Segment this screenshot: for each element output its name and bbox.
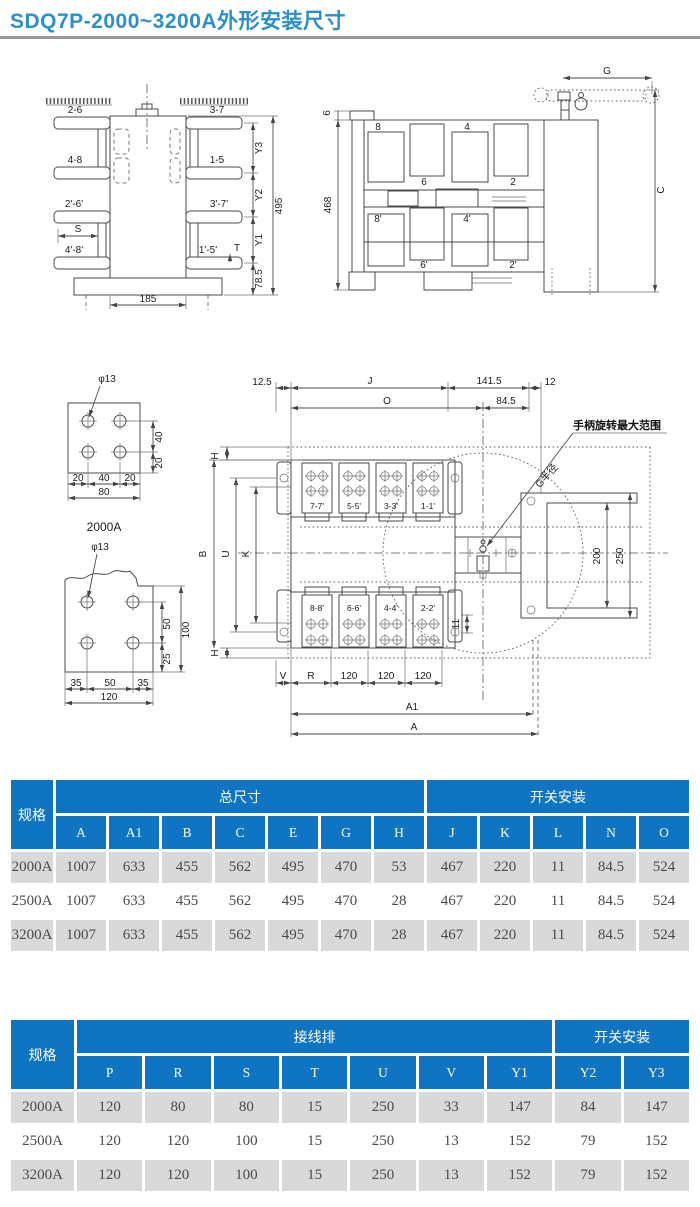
column-header-cell: K xyxy=(479,815,532,851)
spec-cell: 3200A xyxy=(10,1159,76,1193)
dim-label: φ13 xyxy=(98,374,116,385)
value-cell: 15 xyxy=(280,1125,348,1159)
dim-label: U xyxy=(221,550,232,557)
value-cell: 152 xyxy=(622,1159,690,1193)
table-row: 2500A120120100152501315279152 xyxy=(10,1125,691,1159)
value-cell: 495 xyxy=(267,919,320,953)
dim-label: 35 xyxy=(70,678,82,689)
dim-label: 40 xyxy=(98,473,110,484)
front-view-geometry xyxy=(334,78,659,296)
value-cell: 250 xyxy=(349,1159,417,1193)
value-cell: 455 xyxy=(161,885,214,919)
column-header-cell: E xyxy=(267,815,320,851)
terminal-label: 3-3' xyxy=(384,501,398,511)
spec-cell: 3200A xyxy=(10,919,55,953)
value-cell: 467 xyxy=(426,851,479,885)
pole-label: 4' xyxy=(463,214,471,225)
column-header-cell: P xyxy=(76,1055,144,1091)
dim-label: 20 xyxy=(124,473,136,484)
column-header-cell: S xyxy=(212,1055,280,1091)
value-cell: 84 xyxy=(554,1091,622,1125)
plate-size-label: 2000A xyxy=(87,520,122,534)
value-cell: 470 xyxy=(320,919,373,953)
column-header-cell: T xyxy=(280,1055,348,1091)
value-cell: 1007 xyxy=(55,851,108,885)
terminal-label: 7-7' xyxy=(310,501,324,511)
value-cell: 562 xyxy=(214,851,267,885)
value-cell: 28 xyxy=(373,885,426,919)
pole-label: 2'-6' xyxy=(65,199,83,210)
column-header-cell: V xyxy=(417,1055,485,1091)
dim-label: 35 xyxy=(137,678,149,689)
column-header-cell: U xyxy=(349,1055,417,1091)
column-header-cell: G xyxy=(320,815,373,851)
value-cell: 147 xyxy=(622,1091,690,1125)
value-cell: 28 xyxy=(373,919,426,953)
column-header-cell: N xyxy=(585,815,638,851)
value-cell: 53 xyxy=(373,851,426,885)
value-cell: 470 xyxy=(320,885,373,919)
terminal-label: 4-4' xyxy=(384,603,398,613)
value-cell: 455 xyxy=(161,851,214,885)
dim-label: V xyxy=(280,671,287,682)
dim-label: 495 xyxy=(274,197,285,214)
pole-label: 4 xyxy=(464,122,470,133)
value-cell: 250 xyxy=(349,1125,417,1159)
pole-label: 8 xyxy=(375,122,381,133)
value-cell: 13 xyxy=(417,1159,485,1193)
terminal-block: 3-3' xyxy=(376,463,406,521)
terminal-block: 4-4' xyxy=(376,587,406,647)
installation-drawing: φ13 40 20 20 40 20 80 2000A xyxy=(0,350,700,765)
dim-label: 120 xyxy=(341,671,358,682)
dim-label: G半径 xyxy=(532,461,560,490)
pole-label: 2-6 xyxy=(68,105,83,116)
dim-label: 100 xyxy=(181,621,192,638)
handle-range-note: 手柄旋转最大范围 xyxy=(573,418,661,432)
terminal-label: 8-8' xyxy=(310,603,324,613)
datasheet-page: SDQ7P-2000~3200A外形安装尺寸 xyxy=(0,0,700,1207)
value-cell: 562 xyxy=(214,885,267,919)
dim-label: Y1 xyxy=(254,233,265,246)
value-cell: 84.5 xyxy=(585,851,638,885)
value-cell: 220 xyxy=(479,851,532,885)
dim-label: K xyxy=(241,550,252,557)
dim-label: 40 xyxy=(154,431,165,443)
value-cell: 470 xyxy=(320,851,373,885)
value-cell: 33 xyxy=(417,1091,485,1125)
column-header-cell: R xyxy=(144,1055,212,1091)
dim-label: 120 xyxy=(415,671,432,682)
terminal-block: 1-1' xyxy=(413,463,443,521)
dim-label: 80 xyxy=(98,487,110,498)
terminal-label: 1-1' xyxy=(421,501,435,511)
column-header-cell: O xyxy=(638,815,691,851)
dim-label: 6 xyxy=(322,110,333,116)
table-row: 2000A1007633455562495470534672201184.552… xyxy=(10,851,691,885)
value-cell: 524 xyxy=(638,851,691,885)
dim-label: 468 xyxy=(323,196,334,213)
dim-label: 120 xyxy=(101,692,118,703)
pole-label: 4-8 xyxy=(68,155,83,166)
terminal-block: 8-8' xyxy=(302,587,332,647)
value-cell: 80 xyxy=(212,1091,280,1125)
dim-label: H xyxy=(210,452,221,459)
dim-label: 141.5 xyxy=(476,376,501,387)
dim-label: 20 xyxy=(154,457,165,469)
value-cell: 13 xyxy=(417,1125,485,1159)
pole-label: 6 xyxy=(421,177,427,188)
value-cell: 15 xyxy=(280,1159,348,1193)
value-cell: 84.5 xyxy=(585,919,638,953)
terminal-block: 2-2' xyxy=(413,587,443,647)
overall-dimensions-table: 规格总尺寸开关安装AA1BCEGHJKLNO2000A1007633455562… xyxy=(8,777,692,954)
value-cell: 120 xyxy=(76,1125,144,1159)
group-header-cell: 接线排 xyxy=(76,1019,554,1055)
dim-label: 78.5 xyxy=(254,269,265,289)
spec-header-cell: 规格 xyxy=(10,779,55,851)
pole-label: 1-5 xyxy=(210,155,225,166)
value-cell: 120 xyxy=(76,1159,144,1193)
spec-cell: 2000A xyxy=(10,1091,76,1125)
value-cell: 100 xyxy=(212,1159,280,1193)
value-cell: 152 xyxy=(622,1125,690,1159)
value-cell: 524 xyxy=(638,919,691,953)
terminal-block: 5-5' xyxy=(339,463,369,521)
value-cell: 79 xyxy=(554,1159,622,1193)
group-header-cell: 开关安装 xyxy=(554,1019,691,1055)
group-header-cell: 开关安装 xyxy=(426,779,691,815)
value-cell: 84.5 xyxy=(585,885,638,919)
value-cell: 120 xyxy=(144,1125,212,1159)
value-cell: 220 xyxy=(479,885,532,919)
dim-label: T xyxy=(234,243,240,254)
pole-label: 2 xyxy=(510,177,516,188)
dim-label: Y2 xyxy=(254,188,265,201)
dim-label: Y3 xyxy=(254,141,265,154)
value-cell: 220 xyxy=(479,919,532,953)
column-header-cell: Y1 xyxy=(485,1055,553,1091)
dim-label: 120 xyxy=(378,671,395,682)
column-header-cell: L xyxy=(532,815,585,851)
pole-label: 2' xyxy=(509,260,517,271)
value-cell: 100 xyxy=(212,1125,280,1159)
outline-drawings: 2-6 3-7 4-8 1-5 2'-6' 3'-7' 4'-8' 1'-5' … xyxy=(0,55,700,350)
value-cell: 11 xyxy=(532,885,585,919)
dim-label: 50 xyxy=(104,678,116,689)
column-header-cell: H xyxy=(373,815,426,851)
column-header-cell: J xyxy=(426,815,479,851)
value-cell: 633 xyxy=(108,885,161,919)
spec-cell: 2000A xyxy=(10,851,55,885)
dim-label: 84.5 xyxy=(496,396,516,407)
column-header-cell: A xyxy=(55,815,108,851)
dim-label: φ13 xyxy=(91,542,109,553)
spec-header-cell: 规格 xyxy=(10,1019,76,1091)
dim-label: G xyxy=(603,66,611,77)
dim-label: O xyxy=(383,396,391,407)
pole-label: 3'-7' xyxy=(210,199,228,210)
title-divider xyxy=(0,36,700,39)
main-view-labels: 12.5 J 141.5 12 O 84.5 手柄旋转最大范围 G半径 H H … xyxy=(198,376,661,733)
dim-label: 20 xyxy=(72,473,84,484)
value-cell: 120 xyxy=(144,1159,212,1193)
dim-label: A xyxy=(411,722,418,733)
busbar-dimensions-table: 规格接线排开关安装PRSTUVY1Y2Y32000A12080801525033… xyxy=(8,1017,692,1194)
dim-label: 12 xyxy=(544,377,556,388)
mounting-plate-2000a: φ13 40 20 20 40 20 80 2000A xyxy=(68,374,165,534)
dim-label: 12.5 xyxy=(252,377,272,388)
value-cell: 495 xyxy=(267,885,320,919)
pole-label: 1'-5' xyxy=(199,245,217,256)
column-header-cell: Y2 xyxy=(554,1055,622,1091)
dim-label: 250 xyxy=(615,547,626,564)
value-cell: 79 xyxy=(554,1125,622,1159)
terminal-label: 2-2' xyxy=(421,603,435,613)
value-cell: 467 xyxy=(426,919,479,953)
dim-label: J xyxy=(368,376,373,387)
spec-cell: 2500A xyxy=(10,1125,76,1159)
pole-label: 8' xyxy=(374,214,382,225)
terminal-blocks: 7-7' 5-5' 3-3' 1-1' xyxy=(302,463,443,647)
value-cell: 562 xyxy=(214,919,267,953)
value-cell: 152 xyxy=(485,1125,553,1159)
value-cell: 495 xyxy=(267,851,320,885)
value-cell: 633 xyxy=(108,851,161,885)
dim-label: 25 xyxy=(162,653,173,665)
column-header-cell: Y3 xyxy=(622,1055,690,1091)
group-header-cell: 总尺寸 xyxy=(55,779,426,815)
dim-label: 50 xyxy=(162,618,173,630)
pole-label: 6' xyxy=(420,260,428,271)
value-cell: 120 xyxy=(76,1091,144,1125)
terminal-label: 6-6' xyxy=(347,603,361,613)
table-row: 2000A1208080152503314784147 xyxy=(10,1091,691,1125)
table-row: 3200A120120100152501315279152 xyxy=(10,1159,691,1193)
value-cell: 80 xyxy=(144,1091,212,1125)
mounting-plate-large: φ13 50 25 100 35 50 35 120 xyxy=(65,542,192,706)
column-header-cell: C xyxy=(214,815,267,851)
side-view-geometry xyxy=(46,84,278,310)
value-cell: 467 xyxy=(426,885,479,919)
column-header-cell: B xyxy=(161,815,214,851)
dim-label: H xyxy=(210,649,221,656)
value-cell: 1007 xyxy=(55,885,108,919)
value-cell: 455 xyxy=(161,919,214,953)
value-cell: 11 xyxy=(532,919,585,953)
dim-label: A1 xyxy=(406,702,419,713)
terminal-block: 7-7' xyxy=(302,463,332,521)
spec-cell: 2500A xyxy=(10,885,55,919)
value-cell: 524 xyxy=(638,885,691,919)
dim-label: 200 xyxy=(592,547,603,564)
dim-label: B xyxy=(198,550,209,557)
pole-label: 3-7 xyxy=(210,105,225,116)
value-cell: 633 xyxy=(108,919,161,953)
page-title: SDQ7P-2000~3200A外形安装尺寸 xyxy=(10,5,346,35)
value-cell: 250 xyxy=(349,1091,417,1125)
value-cell: 147 xyxy=(485,1091,553,1125)
column-header-cell: A1 xyxy=(108,815,161,851)
dim-label: C xyxy=(656,186,667,193)
table-row: 2500A1007633455562495470284672201184.552… xyxy=(10,885,691,919)
pole-label: 4'-8' xyxy=(65,245,83,256)
dim-label: 11 xyxy=(451,618,462,629)
dim-label: S xyxy=(75,224,82,235)
value-cell: 1007 xyxy=(55,919,108,953)
dim-label: R xyxy=(307,671,314,682)
value-cell: 15 xyxy=(280,1091,348,1125)
terminal-label: 5-5' xyxy=(347,501,361,511)
terminal-block: 6-6' xyxy=(339,587,369,647)
table-row: 3200A1007633455562495470284672201184.552… xyxy=(10,919,691,953)
value-cell: 11 xyxy=(532,851,585,885)
value-cell: 152 xyxy=(485,1159,553,1193)
dim-label: 185 xyxy=(140,294,157,305)
